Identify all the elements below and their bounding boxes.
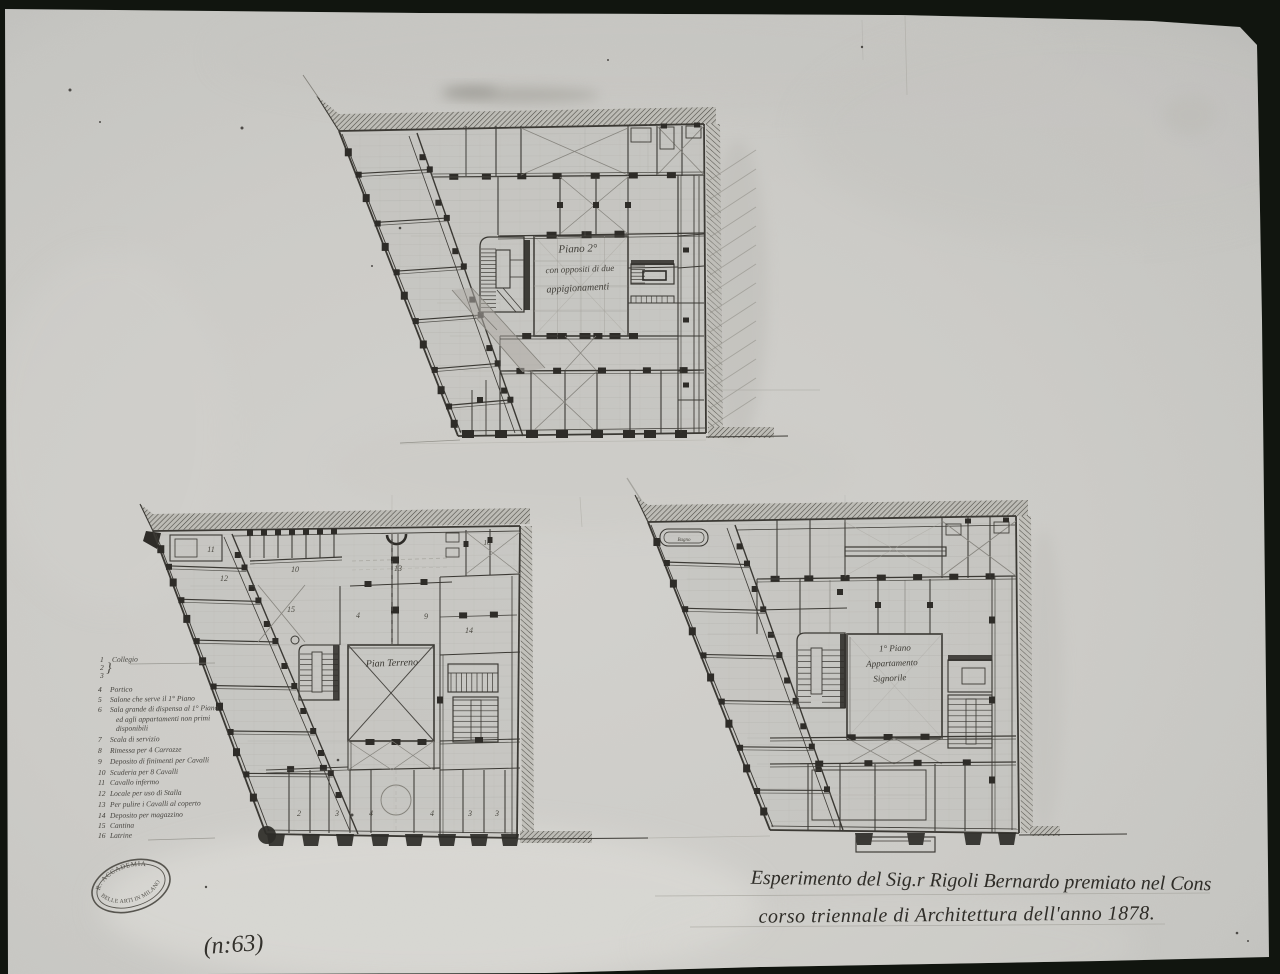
svg-text:Per pulire i Cavalli al copert: Per pulire i Cavalli al coperto xyxy=(109,798,201,809)
svg-text:14: 14 xyxy=(465,626,473,635)
svg-text:9: 9 xyxy=(98,757,102,766)
svg-text:3: 3 xyxy=(467,809,472,818)
svg-text:Rimessa per 4 Carrozze: Rimessa per 4 Carrozze xyxy=(109,745,182,755)
svg-text:Cavallo infermo: Cavallo infermo xyxy=(110,777,159,787)
svg-text:8: 8 xyxy=(98,746,102,755)
svg-text:Pian Terreno: Pian Terreno xyxy=(365,657,419,670)
svg-text:4: 4 xyxy=(369,809,373,818)
svg-text:10: 10 xyxy=(291,565,299,574)
svg-text:4: 4 xyxy=(356,611,360,620)
svg-text:15: 15 xyxy=(287,605,295,614)
svg-text:Scala di servizio: Scala di servizio xyxy=(110,734,160,744)
svg-text:7: 7 xyxy=(98,735,102,744)
svg-text:Deposito per magazzino: Deposito per magazzino xyxy=(109,810,183,820)
svg-text:3: 3 xyxy=(494,809,499,818)
svg-text:11: 11 xyxy=(207,545,214,554)
svg-text:Sala grande di dispensa al 1°: Sala grande di dispensa al 1° Piano xyxy=(110,703,219,714)
svg-text:Scuderia per 8 Cavalli: Scuderia per 8 Cavalli xyxy=(110,767,178,777)
svg-text:4: 4 xyxy=(98,685,102,694)
svg-text:Latrine: Latrine xyxy=(109,831,133,840)
svg-text:Deposito di finimenti per Cava: Deposito di finimenti per Cavalli xyxy=(109,755,209,766)
svg-text:Piano 2°: Piano 2° xyxy=(557,242,598,255)
svg-text:9: 9 xyxy=(424,612,428,621)
svg-text:1° Piano: 1° Piano xyxy=(879,642,912,653)
svg-text:3: 3 xyxy=(334,809,339,818)
svg-text:Collegio: Collegio xyxy=(112,655,138,664)
svg-text:}: } xyxy=(106,661,112,676)
svg-text:corso triennale di Architettur: corso triennale di Architettura dell'ann… xyxy=(759,902,1156,927)
svg-text:14: 14 xyxy=(98,811,106,820)
svg-text:Cantina: Cantina xyxy=(110,821,135,830)
svg-text:12: 12 xyxy=(98,789,106,798)
svg-text:4: 4 xyxy=(430,809,434,818)
svg-text:Locale per uso di Stalla: Locale per uso di Stalla xyxy=(109,788,182,798)
svg-text:(n:63): (n:63) xyxy=(203,930,265,960)
svg-text:16: 16 xyxy=(98,831,106,840)
svg-text:Salone che serve il 1° Piano: Salone che serve il 1° Piano xyxy=(110,694,195,704)
svg-text:15: 15 xyxy=(98,821,106,830)
svg-text:13: 13 xyxy=(98,800,106,809)
svg-text:3: 3 xyxy=(99,671,104,680)
svg-text:2: 2 xyxy=(297,809,301,818)
svg-text:12: 12 xyxy=(220,574,228,583)
svg-text:Portico: Portico xyxy=(109,685,133,694)
svg-text:Signorile: Signorile xyxy=(873,672,906,684)
svg-text:6: 6 xyxy=(98,705,102,714)
svg-text:ed agli appartamenti non primi: ed agli appartamenti non primi xyxy=(116,713,210,724)
svg-text:Bagno: Bagno xyxy=(677,538,691,543)
svg-text:11: 11 xyxy=(98,778,105,787)
svg-text:Appartamento: Appartamento xyxy=(865,657,918,669)
svg-text:disponibili: disponibili xyxy=(116,723,148,733)
svg-text:5: 5 xyxy=(98,695,102,704)
svg-text:10: 10 xyxy=(98,768,106,777)
